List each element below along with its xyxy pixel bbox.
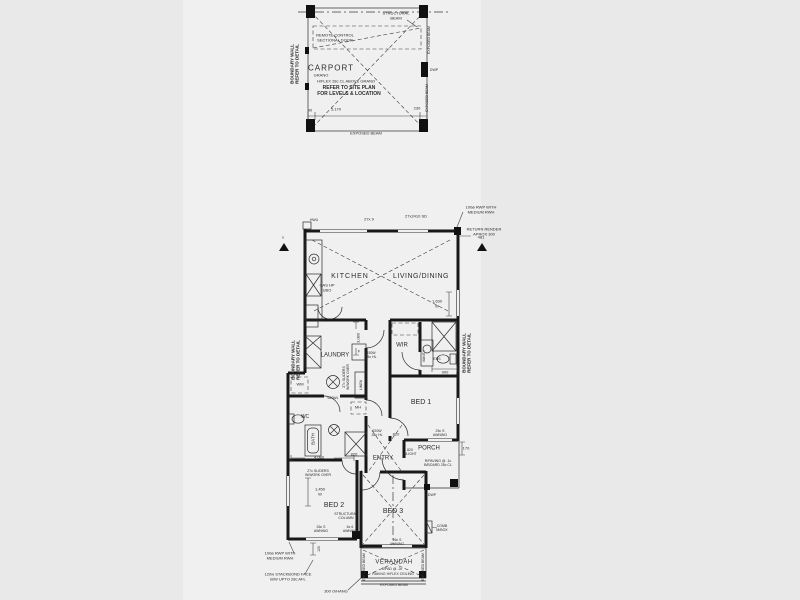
room-label-entry: ENTRY	[373, 455, 393, 462]
remote-sectional-door-label: REMOTE CONTROL SECTIONAL DOOR	[316, 33, 354, 42]
porch-paving-note: R/PAVING @ -1c B/BOARD 28c CL	[424, 459, 452, 467]
room-label-kitchen: KITCHEN	[331, 273, 369, 281]
verandah-raking-note: RAKING H/FLEX CEILING	[372, 572, 414, 576]
exposed-beam-carport-right-2: EXPOSED BEAM	[425, 84, 429, 112]
stackbond-note: 120w STACKBOND FACE B/W UPTO 28c AFL	[265, 572, 312, 581]
window-dim-27x2410-sd: 27x2410 SD	[405, 215, 427, 220]
room-label-bed1: BED 1	[411, 399, 431, 407]
triangle-x-right: 481	[478, 236, 485, 241]
window-dim-27x9: 27x 9	[364, 218, 374, 223]
room-label-bed2: BED 2	[324, 502, 344, 510]
exposed-beam-carport-right-1: EXPOSED BEAM	[427, 26, 431, 54]
room-label-laundry: LAUNDRY	[321, 352, 350, 359]
carport-dim-230: 230	[414, 107, 421, 112]
hwu-label: HWU	[310, 218, 318, 222]
structural-column-label: STRUCTURAL COLUMN	[334, 512, 358, 520]
room-label-living-dining: LIVING/DINING	[393, 273, 449, 281]
carport-hflex-note: H/FLEX 28c CL ABOVE GRANO	[317, 80, 375, 85]
floorplan-page: BOUNDARY WALL REFER TO DETAILSTRUCTURAL …	[0, 0, 800, 600]
linen-label: LINEN	[359, 380, 363, 390]
window-dim-1630: 1,630 W	[432, 299, 442, 308]
dim-3080: 3,080	[357, 333, 362, 343]
mh-label: MH	[355, 406, 361, 411]
awning-bed3-note: 26c S AWNING	[390, 538, 404, 546]
bed2-sliders-note: 27c SLIDERS W/WORK OVER	[305, 469, 331, 477]
boundary-wall-carport-label: BOUNDARY WALL REFER TO DETAIL	[290, 44, 301, 84]
room-label-wc: WC	[301, 415, 309, 421]
awning-porch-note: 25c S AWNING	[433, 429, 447, 437]
carport-dim-90: 90	[308, 109, 312, 114]
dwp-carport-label: DWP	[430, 68, 438, 72]
window-dim-920w: 920W 28c HL	[371, 429, 382, 437]
room-label-verandah: VERANDAH	[375, 559, 412, 566]
window-dim-620wl: 620WL	[327, 396, 338, 400]
door-dim-820-llight: 820 L/LIGHT	[403, 448, 416, 456]
comb-mbox-label: COMB M/BOX	[436, 524, 447, 532]
laundry-sliders-note: 27c SLIDERS W/WORK OVER	[342, 364, 350, 390]
window-dim-930w: 930W 25c HL	[365, 351, 376, 359]
overhang-note: 300 O/HANG	[324, 590, 348, 595]
room-label-bath: BATH	[310, 433, 315, 445]
awning-6x6-note: 6x 6 AWNING	[343, 525, 357, 533]
door-dim-820-bed2: 820	[351, 453, 358, 458]
room-label-carport: CARPORT	[308, 63, 354, 72]
vanity-label: VANITY	[422, 350, 426, 362]
ens-label: ENS	[433, 357, 440, 361]
carport-grano-note: GRANO	[314, 74, 329, 79]
rwp-top-note: 100ø RWP WITH MEDIUM RWH	[466, 205, 497, 214]
dim-120: 120	[317, 546, 321, 552]
dim-170: 170	[463, 447, 470, 452]
exposed-beam-verandah-left: EXPOSED BEAM	[362, 553, 366, 581]
triangle-x-left: x	[282, 236, 284, 241]
wm-label: WM	[296, 383, 303, 388]
exposed-beam-verandah-bottom: EXPOSED BEAM	[380, 583, 408, 587]
verandah-spad-note: S/PAD @ -2c	[382, 567, 403, 571]
window-dim-1450: 1,450 W	[315, 487, 325, 496]
carport-dim-5170: 5,170	[331, 108, 341, 113]
dim-4080: 4,080	[314, 456, 324, 461]
dim-900: 900	[442, 371, 449, 376]
exposed-beam-verandah-right: EXPOSED BEAM	[421, 553, 425, 581]
room-label-porch: PORCH	[418, 445, 440, 452]
exposed-beam-carport-bottom: EXPOSED BEAM	[350, 132, 382, 137]
carport-siteplan-note: REFER TO SITE PLAN FOR LEVELS & LOCATION	[317, 86, 381, 98]
dwp-porch-label: DWP	[428, 493, 436, 497]
structural-beam-label: STRUCTURAL BEAM	[383, 11, 410, 20]
rwp-bottom-note: 100ø RWP WITH MEDIUM RWH	[265, 551, 296, 560]
fridge-label: F	[358, 350, 360, 355]
door-dim-820-hall: 820	[393, 433, 400, 438]
kitchen-gas-hp-ubo: GAS HP UBO	[319, 283, 334, 292]
boundary-wall-right-label: BOUNDARY WALL REFER TO DETAIL	[462, 333, 473, 373]
room-label-bed3: BED 3	[383, 508, 403, 516]
room-label-wir: WIR	[396, 342, 408, 349]
boundary-wall-left-label: BOUNDARY WALL REFER TO DETAIL	[291, 340, 302, 380]
awning-bed2-note: 26c S AWNING	[314, 525, 328, 533]
